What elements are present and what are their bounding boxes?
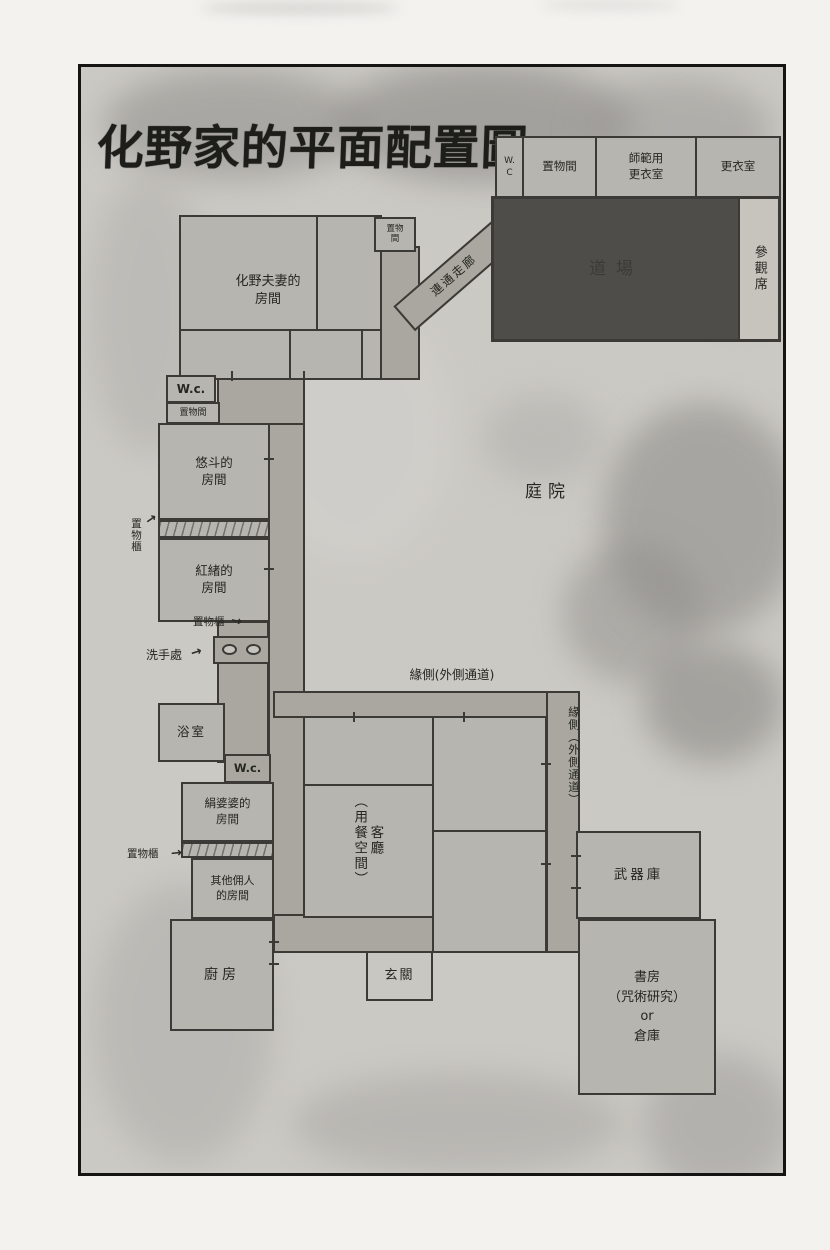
page-title: 化野家的平面配置圖 (96, 109, 530, 178)
washstand (213, 636, 270, 664)
room-study: 書房 （咒術研究） or 倉庫 (578, 919, 716, 1095)
room-label: 師範用 更衣室 (629, 151, 664, 182)
wall-divider (289, 329, 291, 378)
room-dojo: 道場 (494, 199, 740, 339)
room-label: 玄關 (384, 967, 414, 985)
door-tick (463, 712, 465, 722)
room-wc-top: W. C (495, 136, 524, 198)
room-label: 紅緒的 房間 (195, 563, 233, 597)
page-edge-smudge (200, 2, 400, 14)
washbasin-icon (246, 644, 261, 655)
building-parents: 化野夫妻的 房間 (179, 215, 382, 380)
room-label: 置物 間 (386, 225, 403, 245)
building-central-east (432, 716, 547, 953)
closet-strip (181, 842, 274, 858)
room-label: 書房 （咒術研究） or 倉庫 (608, 968, 686, 1046)
room-instructor-changing: 師範用 更衣室 (595, 136, 697, 198)
door-tick (571, 887, 581, 889)
door-tick (269, 941, 279, 943)
room-changing: 更衣室 (695, 136, 781, 198)
wall-divider (434, 830, 545, 832)
wall-divider (181, 329, 380, 331)
tone-cloud (483, 393, 603, 483)
page-edge-smudge (540, 0, 680, 10)
door-tick (303, 371, 305, 381)
tone-cloud (293, 1073, 623, 1173)
room-entrance: 玄關 (366, 951, 433, 1001)
room-label: 置物間 (179, 407, 206, 419)
room-label: 絹婆婆的 房間 (205, 796, 251, 827)
door-tick (264, 568, 274, 570)
room-label: 參觀席 (750, 245, 768, 293)
building-living: 客廳 （用餐空間） (303, 716, 435, 918)
room-wc-mid: W.c. (224, 754, 271, 783)
manga-floorplan-page: { "page": { "title": "化野家的平面配置圖" }, "pal… (0, 0, 830, 1250)
room-spectator-seats: 參觀席 (740, 199, 778, 339)
corridor-under-parents (217, 378, 305, 426)
room-yuto: 悠斗的 房間 (158, 423, 270, 520)
door-tick (541, 863, 551, 865)
engawa-label-horizontal: 緣側(外側通道) (377, 664, 527, 683)
room-label: W.c. (234, 761, 261, 777)
room-servants: 其他佣人 的房間 (191, 858, 274, 919)
door-tick (541, 763, 551, 765)
room-storage-small-top: 置物 間 (374, 217, 416, 252)
door-tick (269, 963, 279, 965)
room-kitchen: 廚房 (170, 919, 274, 1031)
wall-divider (305, 784, 433, 786)
door-tick (571, 855, 581, 857)
room-label: W.c. (177, 381, 206, 397)
room-armory: 武器庫 (576, 831, 701, 919)
arrow-icon: → (189, 644, 204, 662)
arrow-icon: → (170, 845, 182, 861)
courtyard-label: 庭院 (503, 477, 593, 502)
room-label: 化野夫妻的 房間 (203, 273, 333, 308)
room-label: 武器庫 (614, 866, 664, 884)
room-label: 廚房 (204, 966, 240, 985)
room-label: W. C (504, 155, 515, 179)
washing-area-label: 洗手處 (146, 646, 182, 663)
door-tick (264, 458, 274, 460)
door-tick (231, 371, 233, 381)
room-label: 浴室 (177, 724, 206, 741)
comic-panel-frame: 化野家的平面配置圖 連通走廊 W. C 置物間 師範用 更衣室 更衣室 道場 (78, 64, 786, 1176)
room-storage-left: 置物間 (166, 402, 220, 424)
wall-divider (361, 329, 363, 378)
room-storage-top: 置物間 (522, 136, 597, 198)
room-label: 道場 (589, 258, 643, 281)
door-tick (353, 712, 355, 722)
room-label: 悠斗的 房間 (195, 455, 233, 489)
tone-cloud (643, 643, 783, 763)
room-benio: 紅緒的 房間 (158, 538, 270, 622)
connecting-corridor-label: 連通走廊 (428, 251, 481, 300)
room-label: 更衣室 (721, 159, 756, 175)
room-label: 客廳 （用餐空間） (351, 794, 383, 887)
engawa-north (273, 691, 580, 718)
building-dojo: 道場 參觀席 (491, 196, 781, 342)
room-label: 其他佣人 的房間 (211, 874, 255, 904)
room-kinu: 絹婆婆的 房間 (181, 782, 274, 842)
engawa-label-vertical: 緣側（外側通道） (566, 693, 582, 818)
closet2-label: 置物櫃 (193, 614, 225, 629)
floorplan-canvas: 化野家的平面配置圖 連通走廊 W. C 置物間 師範用 更衣室 更衣室 道場 (78, 64, 786, 1176)
closet-strip (158, 520, 270, 538)
room-wc-left: W.c. (166, 375, 216, 403)
closet3-label: 置物櫃 (127, 846, 159, 861)
room-label: 置物間 (542, 159, 577, 175)
washbasin-icon (222, 644, 237, 655)
room-bath: 浴室 (158, 703, 225, 762)
